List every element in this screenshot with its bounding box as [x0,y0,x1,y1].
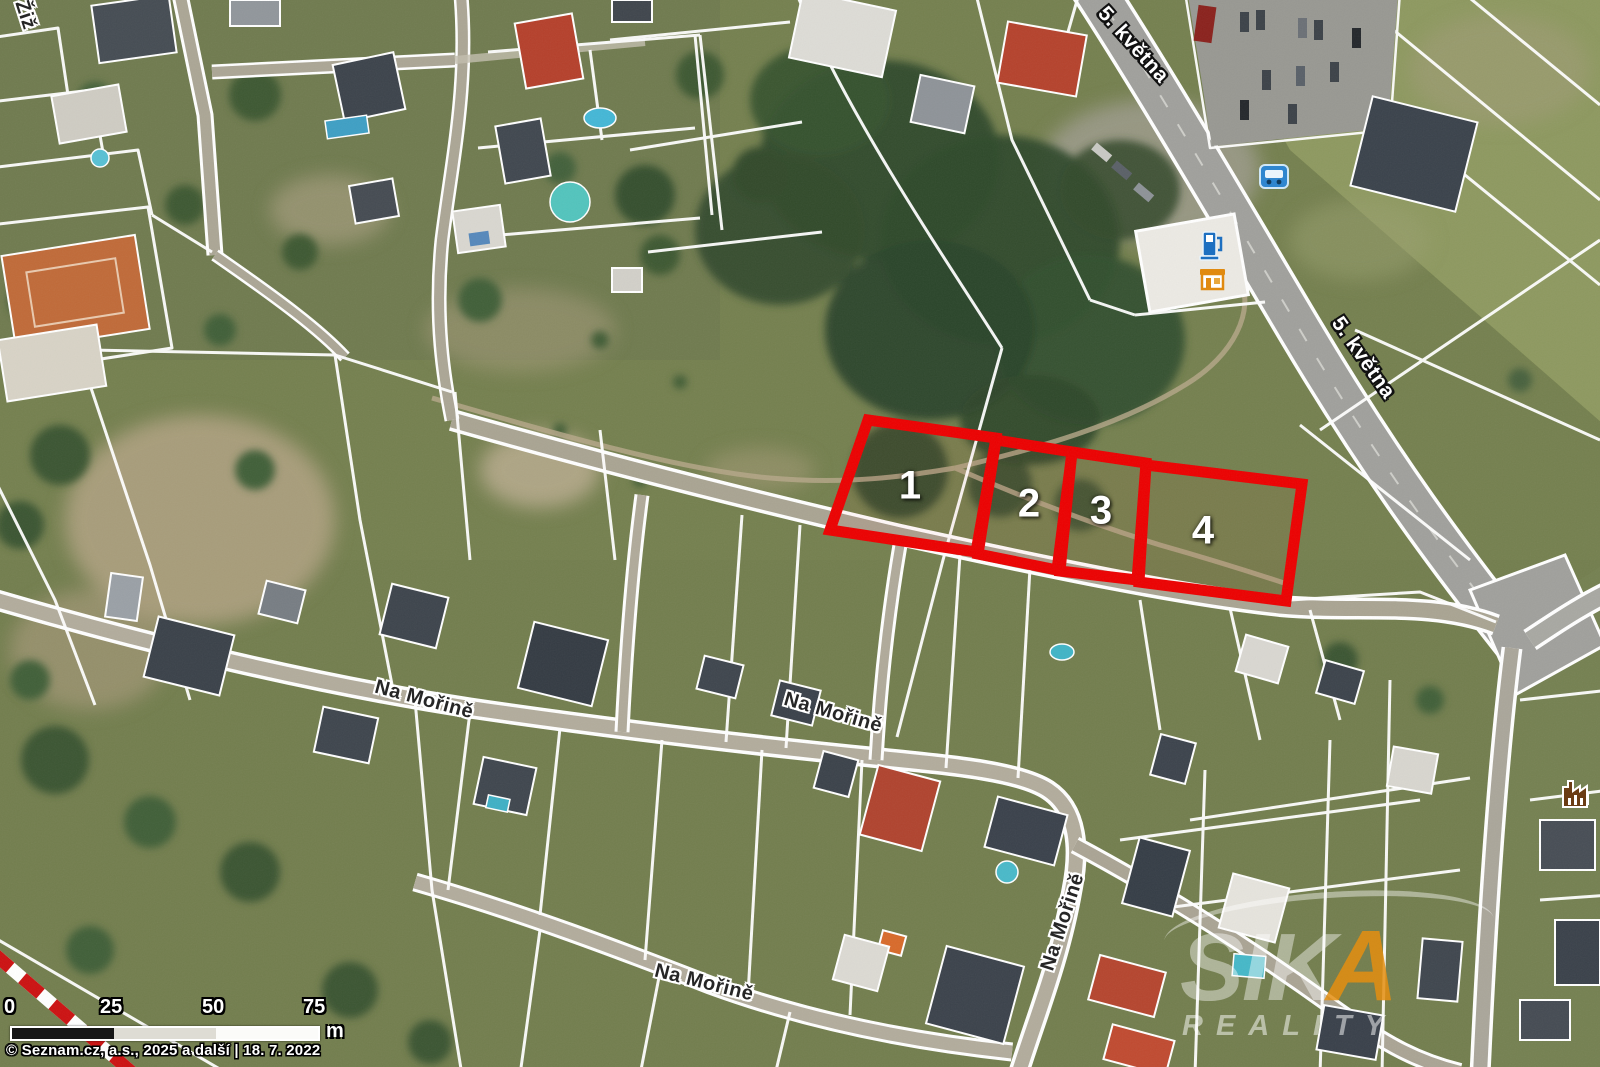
satellite-scene [0,0,1600,1067]
scale-tick-25: 25 [100,996,122,1019]
scale-tick-75: 75 [303,996,325,1019]
map-canvas[interactable]: 5. května 5. května Na Mořině Na Mořině … [0,0,1600,1067]
scale-unit: m [326,1020,344,1043]
scale-tick-0: 0 [4,996,15,1019]
scale-tick-50: 50 [202,996,224,1019]
scale-bar-segments [10,1026,320,1041]
map-attribution: © Seznam.cz, a.s., 2025 a další | 18. 7.… [6,1042,320,1059]
